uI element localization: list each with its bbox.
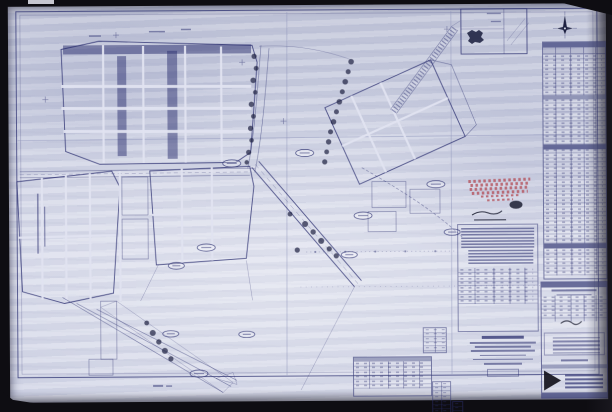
approval-stamp [467,177,532,217]
notes-paragraph [468,250,533,265]
scan-edge-right-shadow [586,0,612,412]
central-subdivision-block [120,166,255,301]
site-location-blob [467,30,484,44]
ladder-parcel-strip [390,21,461,113]
notes-block [457,224,539,332]
scan-edge-sliver [28,0,54,4]
north-arrow-icon [553,11,577,38]
southwest-converging-roads [63,296,238,393]
margin-smudges [89,29,191,37]
scan-content [0,0,612,412]
key-plan [461,9,529,54]
mini-table-tall [432,381,451,412]
place-label-ovals [162,148,461,377]
west-subdivision-block [17,171,121,304]
east-parcels-and-boundary [362,167,462,238]
mini-table-narrow [452,401,463,412]
project-title-text [467,335,539,397]
legend-table [353,356,432,396]
northwest-subdivision-block [61,40,258,164]
notes-paragraph [461,228,534,248]
scanned-sheet-background [0,0,612,412]
consultant-logo-icon [544,370,561,390]
mini-table-upper [423,327,447,353]
main-diagonal-road [140,161,362,391]
